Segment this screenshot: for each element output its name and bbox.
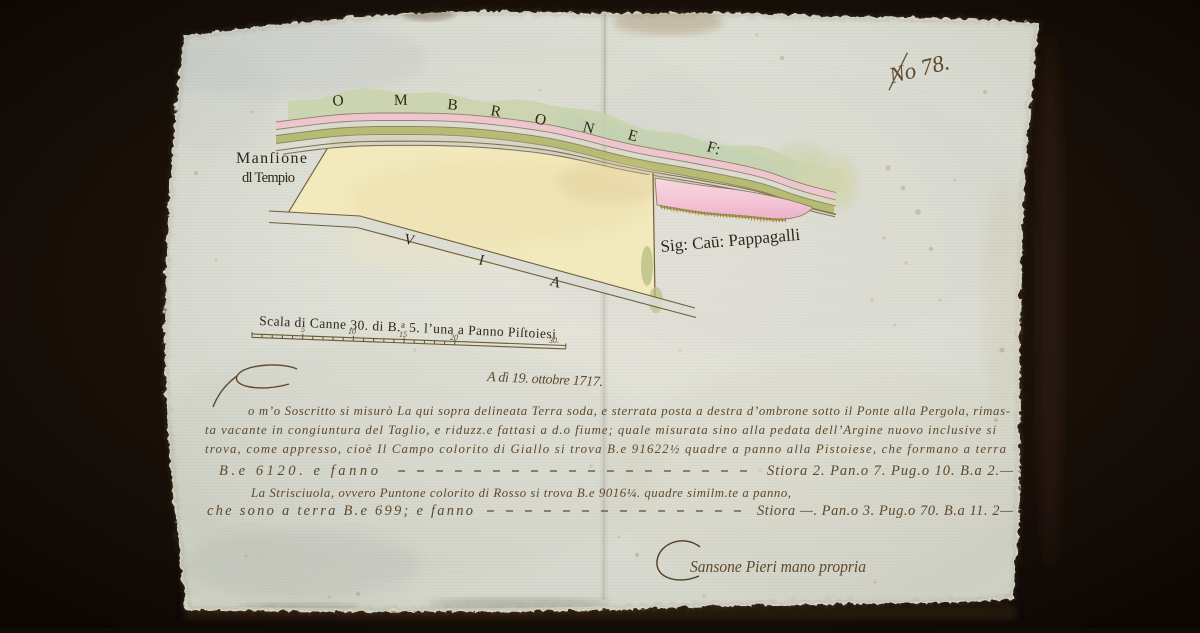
svg-text:dl Tempio: dl Tempio	[242, 170, 295, 186]
svg-text:Stiora —. Pan.o 3. Pug.o 70. B: Stiora —. Pan.o 3. Pug.o 70. B.a 11. 2—	[757, 503, 1013, 519]
svg-text:M: M	[394, 92, 408, 109]
svg-text:15: 15	[399, 330, 407, 339]
svg-text:5: 5	[301, 325, 305, 334]
svg-text:10: 10	[348, 327, 356, 336]
svg-text:20: 20	[450, 333, 458, 342]
svg-text:trova, come appresso, cioè Il: trova, come appresso, cioè Il Campo colo…	[205, 442, 1006, 456]
svg-text:o m’o Soscritto si misurò La q: o m’o Soscritto si misurò La qui sopra d…	[248, 404, 1010, 418]
svg-text:Stiora 2. Pan.o 7. Pug.o 10. B: Stiora 2. Pan.o 7. Pug.o 10. B.a 2.—	[767, 463, 1013, 479]
svg-text:O: O	[332, 92, 345, 110]
svg-text:B: B	[447, 96, 459, 114]
svg-text:ta vacante in congiuntura del: ta vacante in congiuntura del Taglio, e …	[205, 423, 996, 437]
svg-text:che sono a terra B.e 699; e fa: che sono a terra B.e 699; e fanno	[207, 503, 473, 519]
svg-text:30.: 30.	[548, 336, 559, 345]
svg-text:La Strisciuola, ovvero Puntone: La Strisciuola, ovvero Puntone colorito …	[250, 486, 791, 500]
svg-text:B.e 6120. e fanno: B.e 6120. e fanno	[219, 463, 378, 479]
svg-text:Manſione: Manſione	[236, 150, 307, 167]
svg-text:Sansone Pieri mano propria: Sansone Pieri mano propria	[690, 557, 866, 576]
